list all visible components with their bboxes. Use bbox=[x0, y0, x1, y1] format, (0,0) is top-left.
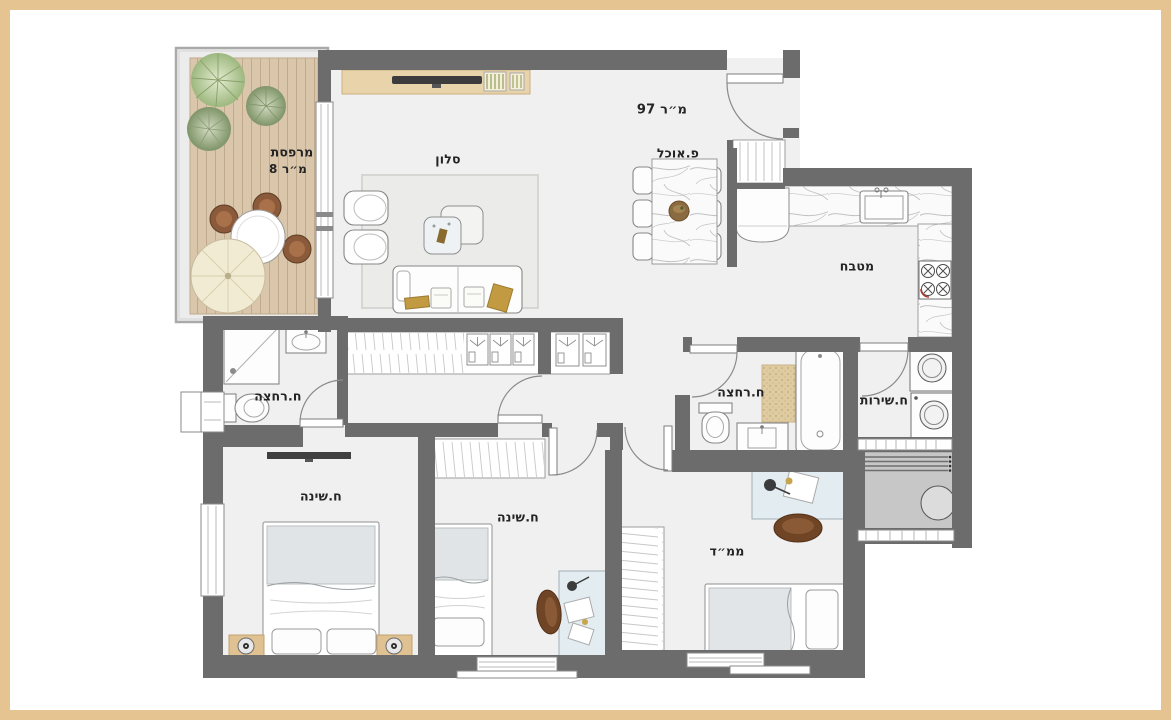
label-balcony-area: 8 מ״ר bbox=[269, 162, 307, 176]
label-bathroom-left: ח.רחצה bbox=[254, 389, 301, 404]
label-balcony: מרפסת bbox=[271, 145, 314, 160]
label-safe-room: ממ״ד bbox=[709, 544, 744, 559]
label-living-room: סלון bbox=[435, 152, 460, 167]
label-bedroom-middle: ח.שינה bbox=[497, 510, 539, 525]
label-bedroom-left: ח.שינה bbox=[300, 489, 342, 504]
label-service-room: ח.שירות bbox=[860, 393, 908, 408]
room-labels: מרפסת 8 מ״ר סלון 97 מ״ר פ.אוכל מטבח ח.רח… bbox=[0, 0, 1171, 720]
label-dining-nook: פ.אוכל bbox=[657, 146, 699, 161]
label-total-area: 97 מ״ר bbox=[637, 103, 687, 118]
label-kitchen: מטבח bbox=[840, 259, 875, 274]
floor-plan-canvas: מרפסת 8 מ״ר סלון 97 מ״ר פ.אוכל מטבח ח.רח… bbox=[0, 0, 1171, 720]
label-bathroom-right: ח.רחצה bbox=[717, 385, 764, 400]
